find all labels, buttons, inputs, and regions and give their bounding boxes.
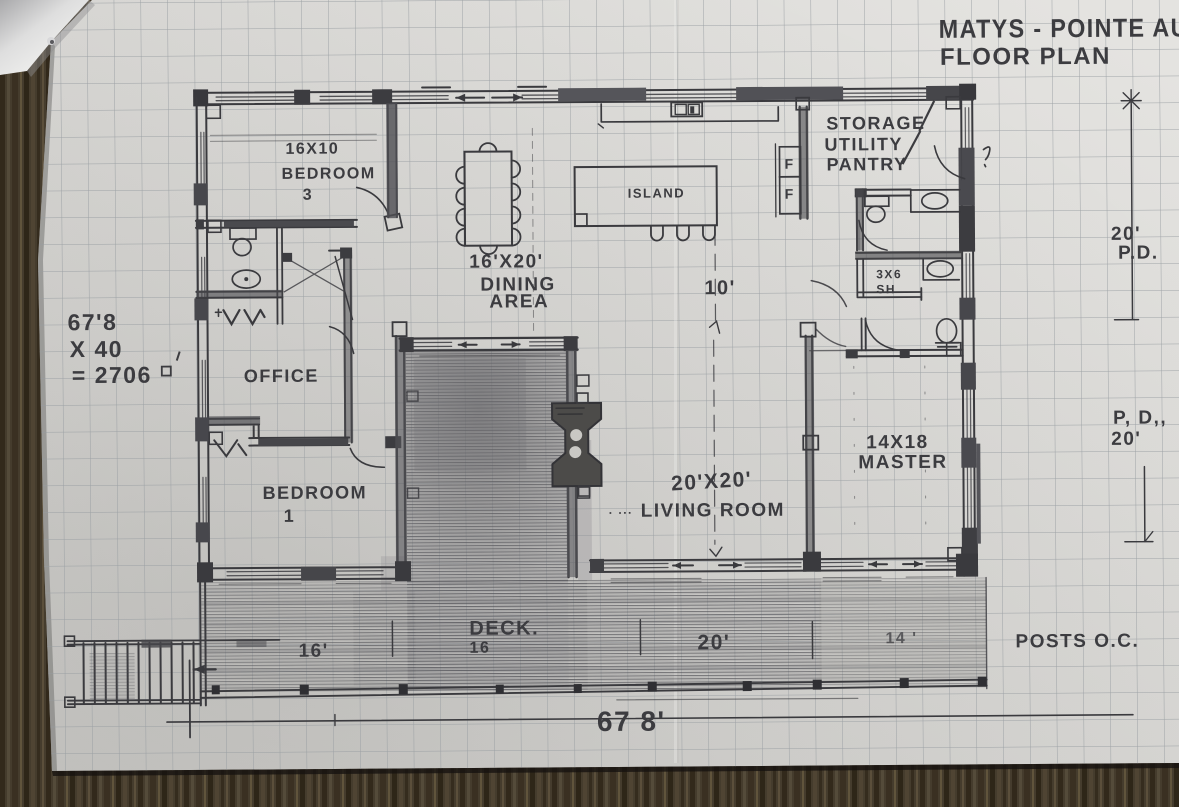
svg-text:3X6: 3X6 (876, 267, 902, 281)
svg-text:STORAGE: STORAGE (826, 113, 925, 134)
svg-text:OFFICE: OFFICE (244, 366, 319, 386)
svg-text:SH: SH (876, 282, 896, 296)
svg-text:67 8': 67 8' (597, 706, 666, 737)
svg-text:16'X20': 16'X20' (469, 251, 544, 272)
svg-text:BEDROOM: BEDROOM (263, 482, 368, 503)
svg-text:POSTS O.C.: POSTS O.C. (1015, 631, 1139, 653)
svg-text:16X10: 16X10 (285, 141, 339, 158)
svg-text:PANTRY: PANTRY (827, 154, 908, 174)
svg-text:F: F (785, 156, 795, 172)
svg-text:MASTER: MASTER (858, 452, 947, 474)
svg-text:16: 16 (469, 640, 490, 657)
svg-text:FLOOR PLAN: FLOOR PLAN (940, 43, 1111, 71)
svg-text:AREA: AREA (489, 291, 549, 312)
svg-text:UTILITY: UTILITY (824, 134, 903, 154)
svg-text:MATYS - POINTE AU: MATYS - POINTE AU (939, 12, 1179, 44)
svg-text:ISLAND: ISLAND (628, 185, 685, 200)
svg-text:. ...: . ... (609, 503, 633, 517)
svg-text:P, D,,: P, D,, (1113, 407, 1167, 428)
svg-text:67'8: 67'8 (67, 309, 117, 335)
svg-text:20': 20' (1111, 429, 1141, 450)
svg-text:X 40: X 40 (70, 336, 123, 362)
svg-text:DECK.: DECK. (469, 617, 539, 639)
svg-text:20': 20' (697, 631, 730, 654)
svg-text:1: 1 (284, 506, 296, 526)
svg-text:14 ': 14 ' (885, 630, 917, 647)
svg-text:14X18: 14X18 (866, 432, 929, 453)
svg-text:16': 16' (298, 641, 328, 662)
svg-text:20': 20' (1111, 224, 1141, 245)
svg-text:BEDROOM: BEDROOM (282, 165, 376, 183)
svg-text:10': 10' (704, 277, 736, 299)
svg-text:LIVING ROOM: LIVING ROOM (641, 500, 785, 522)
svg-text:= 2706: = 2706 (72, 362, 152, 388)
svg-text:3: 3 (303, 187, 314, 204)
svg-text:P.D.: P.D. (1118, 243, 1159, 264)
svg-text:F: F (785, 186, 795, 202)
svg-text:20'X20': 20'X20' (671, 468, 753, 496)
